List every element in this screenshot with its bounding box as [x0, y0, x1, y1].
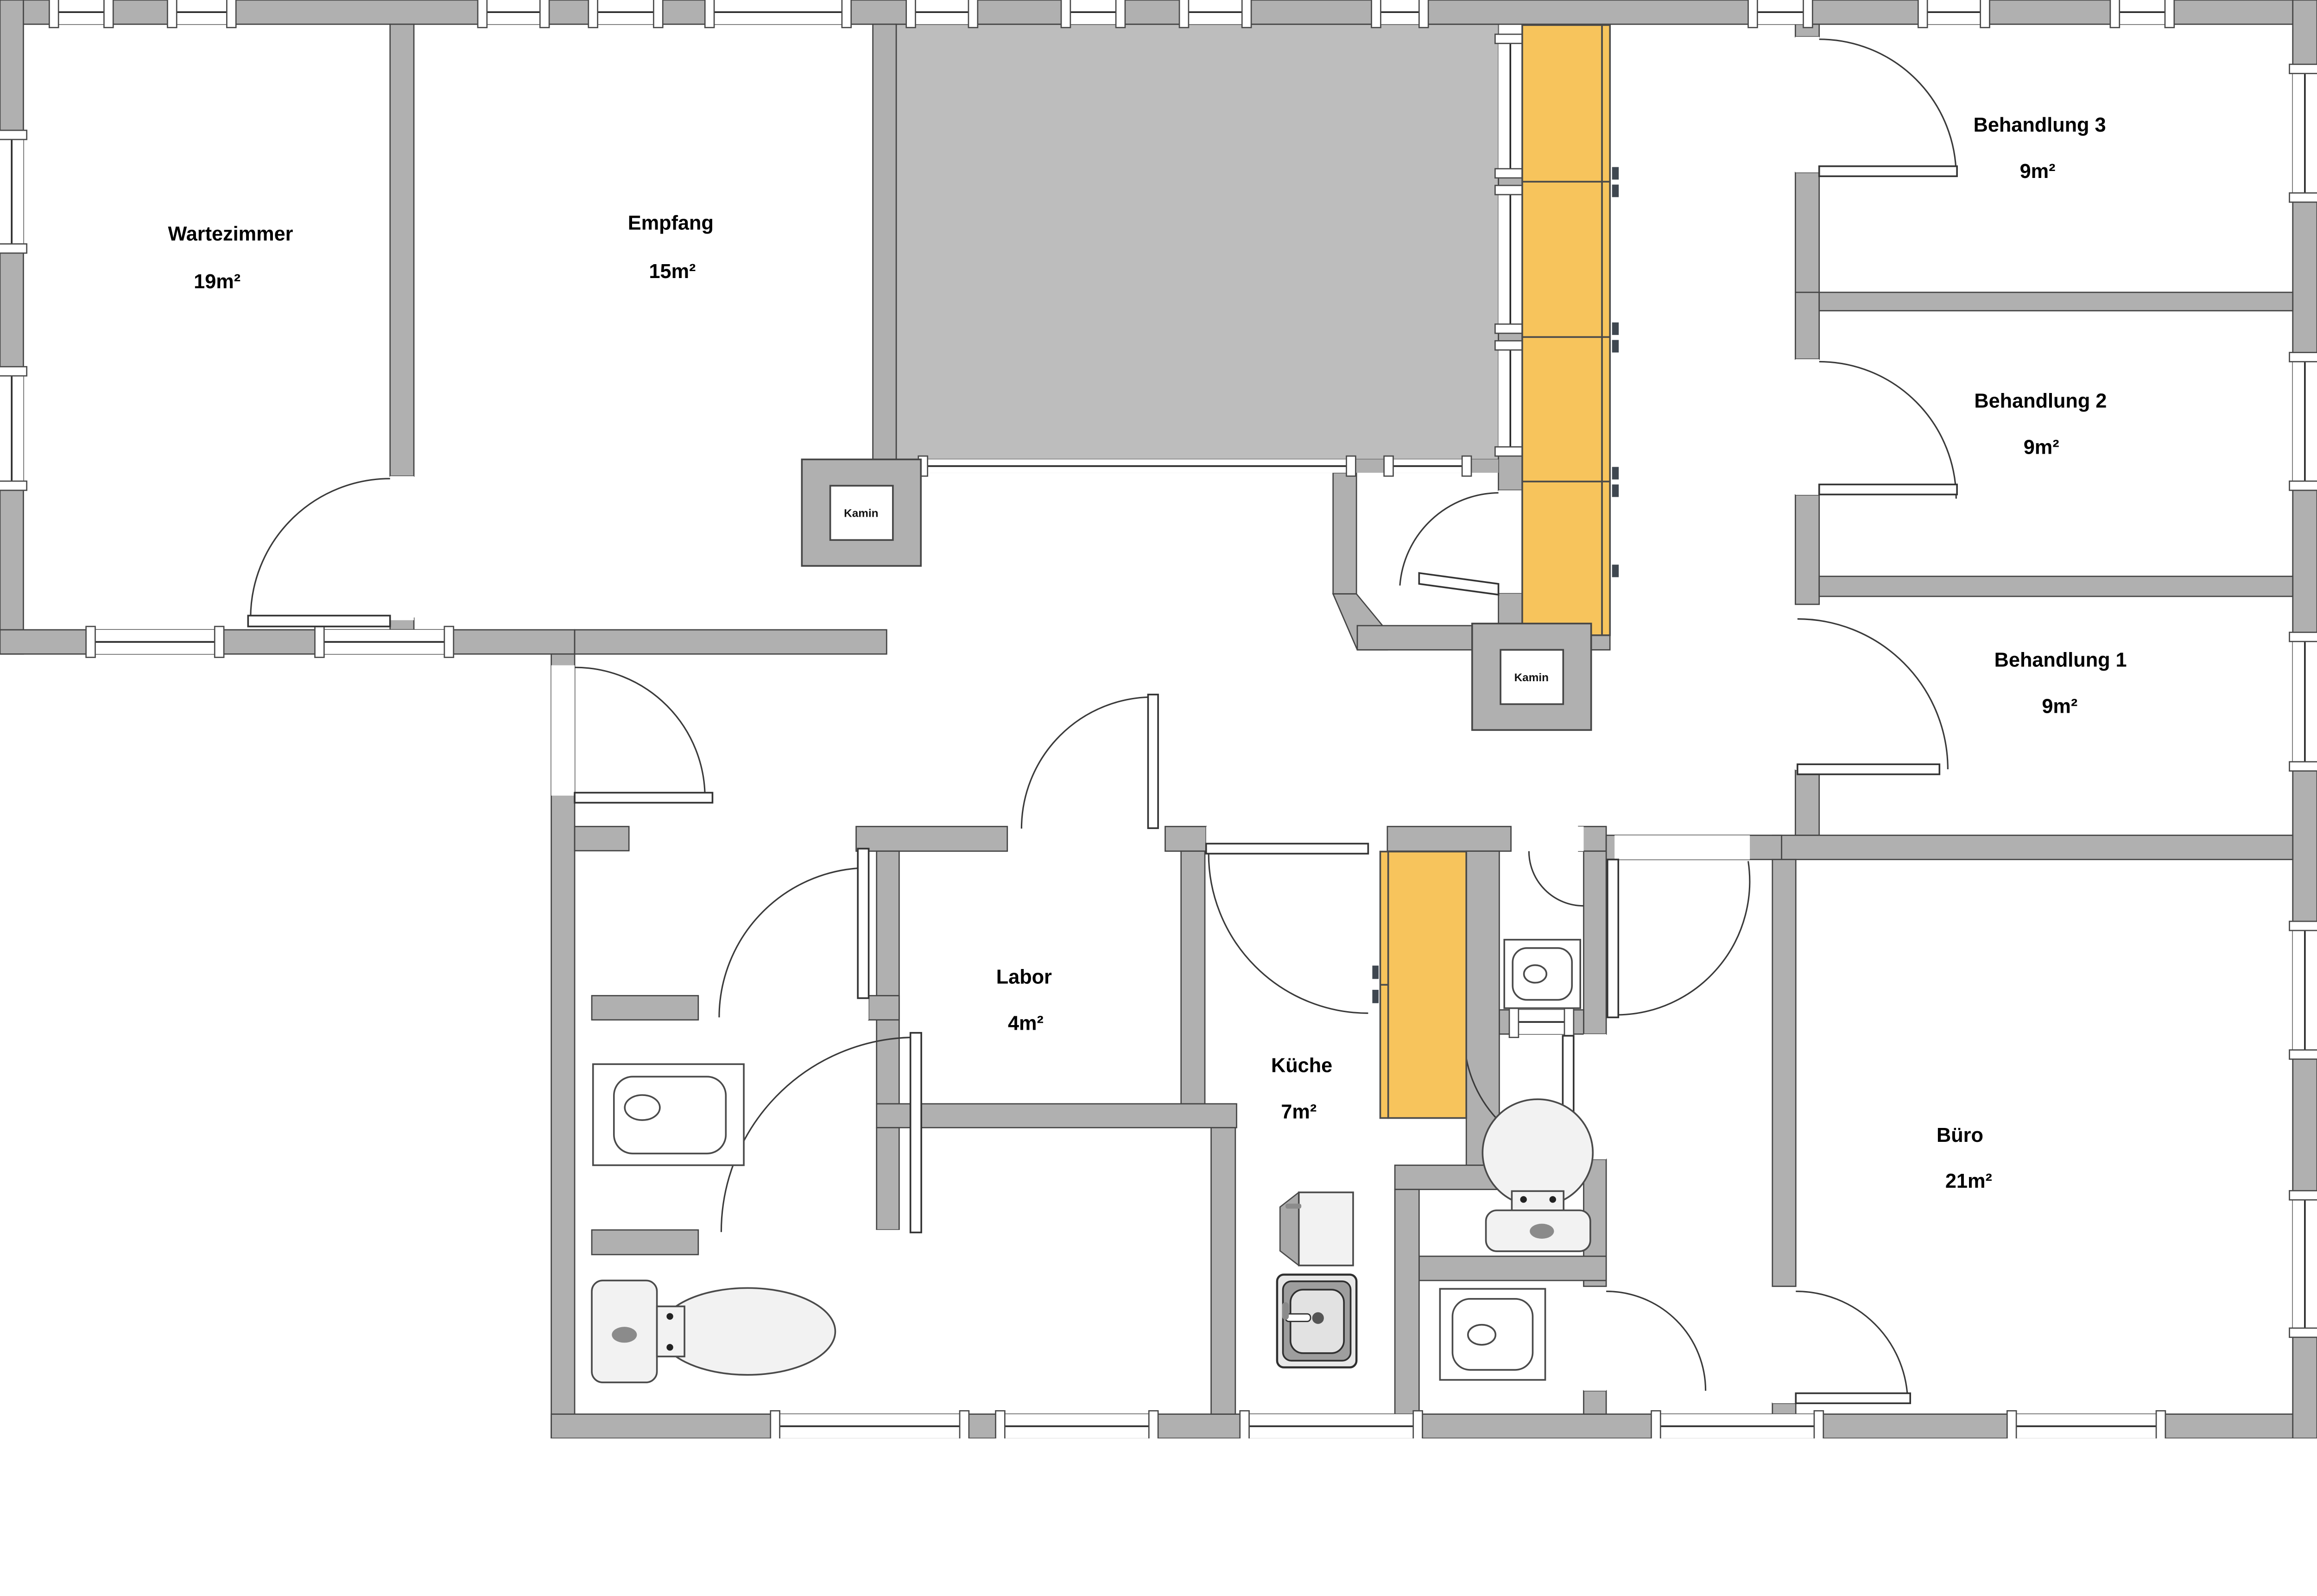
window	[1495, 34, 1526, 178]
window	[478, 0, 549, 27]
label-empfang: Empfang	[628, 212, 714, 234]
door-leaf	[911, 1033, 921, 1233]
window	[1748, 0, 1813, 27]
window	[0, 130, 27, 253]
window-jamb	[1981, 0, 1990, 27]
window	[315, 627, 454, 658]
floor-plan-svg: Wartezimmer 19m² Empfang 15m² Behandlung…	[0, 0, 2317, 1438]
window-jamb	[540, 0, 549, 27]
door-swing-arc	[1209, 854, 1368, 1013]
window	[705, 0, 851, 27]
window-jamb	[2156, 1411, 2165, 1438]
window-jamb	[589, 0, 598, 27]
window-jamb	[2290, 1191, 2317, 1200]
window-jamb	[0, 367, 27, 376]
window-jamb	[842, 0, 851, 27]
window-jamb	[0, 481, 27, 490]
window-jamb	[1495, 185, 1526, 195]
window	[2110, 0, 2174, 27]
area-kueche: 7m²	[1281, 1101, 1317, 1123]
window-jamb	[960, 1411, 969, 1438]
window-jamb	[2290, 353, 2317, 362]
kitchen-cabinet	[1372, 852, 1466, 1118]
door-opening	[1795, 359, 1819, 495]
window	[86, 627, 224, 658]
window	[49, 0, 113, 27]
door	[717, 849, 869, 1020]
window-jamb	[2290, 481, 2317, 490]
window	[2290, 64, 2317, 202]
window-jamb	[1179, 0, 1189, 27]
window-jamb	[2290, 1050, 2317, 1059]
door-opening	[1583, 1289, 1606, 1391]
window	[1509, 1007, 1574, 1038]
door-swing-arc	[1529, 851, 1583, 906]
door-opening	[717, 1230, 917, 1254]
window-jamb	[1651, 1411, 1660, 1438]
door	[1795, 359, 1957, 499]
door-opening	[1526, 827, 1583, 851]
window-jamb	[86, 627, 95, 658]
window-jamb	[1814, 1411, 1823, 1438]
window	[2290, 353, 2317, 490]
door-swing-arc	[1618, 861, 1750, 1015]
cabinet-door-strip	[1602, 25, 1610, 635]
door	[551, 665, 713, 803]
window	[2290, 921, 2317, 1059]
window	[1372, 0, 1429, 27]
window-jamb	[653, 0, 663, 27]
window	[589, 0, 663, 27]
window-jamb	[478, 0, 487, 27]
door-leaf	[1608, 860, 1618, 1018]
window-jamb	[227, 0, 236, 27]
door	[1795, 616, 1948, 774]
door-leaf	[858, 849, 868, 998]
area-labor: 4m²	[1008, 1012, 1044, 1034]
window	[167, 0, 236, 27]
window-jamb	[906, 0, 916, 27]
window-jamb	[1061, 0, 1070, 27]
terrace-area	[896, 24, 1499, 459]
window-jamb	[1372, 0, 1381, 27]
floor-plan: Wartezimmer 19m² Empfang 15m² Behandlung…	[0, 0, 2317, 1438]
door	[1795, 37, 1957, 176]
window	[771, 1411, 969, 1438]
window-jamb	[705, 0, 714, 27]
window	[1651, 1411, 1823, 1438]
toilet-wc	[1482, 1099, 1593, 1251]
area-buero: 21m²	[1945, 1170, 1992, 1192]
door-swing-arc	[1021, 697, 1153, 829]
window-jamb	[1384, 456, 1393, 476]
washbasin-left	[593, 1064, 744, 1165]
window-jamb	[969, 0, 978, 27]
window-jamb	[1509, 1007, 1519, 1038]
door-leaf	[248, 615, 390, 626]
window-jamb	[2290, 1328, 2317, 1337]
window-jamb	[49, 0, 58, 27]
window	[1918, 0, 1989, 27]
door-opening	[1499, 490, 1522, 593]
door-leaf	[1206, 843, 1368, 854]
door	[1206, 827, 1371, 1013]
door-opening	[1773, 1289, 1796, 1403]
door-leaf	[1798, 764, 1939, 774]
door	[1583, 1289, 1705, 1391]
window	[2290, 632, 2317, 771]
label-behandlung3: Behandlung 3	[1974, 114, 2106, 136]
area-empfang: 15m²	[649, 260, 696, 283]
window-jamb	[2290, 64, 2317, 74]
window-jamb	[444, 627, 454, 658]
window-jamb	[1748, 0, 1758, 27]
window-jamb	[1419, 0, 1428, 27]
window-jamb	[2007, 1411, 2016, 1438]
window-jamb	[1564, 1007, 1574, 1038]
area-wartezimmer: 19m²	[194, 271, 241, 293]
label-behandlung2: Behandlung 2	[1974, 390, 2107, 412]
door-leaf	[1796, 1393, 1910, 1403]
window-jamb	[1495, 341, 1526, 350]
toilet-left	[592, 1280, 835, 1382]
washbasin-wc-top	[1504, 940, 1580, 1008]
window	[1495, 185, 1526, 333]
window-jamb	[1495, 324, 1526, 333]
cabinet-handles	[1612, 167, 1619, 577]
window-jamb	[2290, 921, 2317, 931]
door-swing-arc	[251, 479, 390, 618]
kitchen-cabinet-body	[1388, 852, 1467, 1118]
window	[2007, 1411, 2165, 1438]
door-opening	[1795, 37, 1819, 172]
window	[2290, 1191, 2317, 1337]
window-jamb	[996, 1411, 1005, 1438]
door-swing-arc	[1798, 619, 1948, 769]
window-jamb	[1347, 456, 1356, 476]
door	[1773, 1289, 1910, 1403]
window-jamb	[1413, 1411, 1423, 1438]
door-opening	[551, 665, 575, 796]
window	[1061, 0, 1125, 27]
window-jamb	[1495, 169, 1526, 178]
window-jamb	[0, 244, 27, 253]
kitchen-sink	[1277, 1275, 1356, 1368]
window-jamb	[167, 0, 177, 27]
window-jamb	[104, 0, 113, 27]
washbasin-wc-bottom	[1440, 1289, 1545, 1380]
door-swing-arc	[719, 868, 869, 1018]
door-swing-arc	[1819, 361, 1956, 499]
window-jamb	[1803, 0, 1812, 27]
label-behandlung1: Behandlung 1	[1994, 649, 2127, 671]
door-opening	[717, 998, 869, 1020]
label-kueche: Küche	[1271, 1054, 1332, 1077]
door-leaf	[1819, 484, 1957, 494]
window	[1495, 341, 1526, 456]
window-jamb	[2290, 193, 2317, 202]
window-jamb	[1495, 34, 1526, 44]
door	[1019, 695, 1158, 851]
window-jamb	[1240, 1411, 1249, 1438]
window-jamb	[1149, 1411, 1158, 1438]
kitchen-appliance	[1280, 1192, 1353, 1266]
door-opening	[1019, 827, 1153, 851]
door	[1526, 827, 1583, 906]
window-jamb	[1495, 447, 1526, 456]
window	[906, 0, 978, 27]
door	[1400, 490, 1522, 595]
door-swing-arc	[1796, 1292, 1908, 1404]
window-jamb	[215, 627, 224, 658]
door-swing-arc	[575, 667, 705, 798]
door-leaf	[1148, 695, 1158, 828]
door-leaf	[575, 793, 712, 803]
window-jamb	[315, 627, 324, 658]
window	[1240, 1411, 1423, 1438]
door	[1608, 835, 1750, 1017]
window	[0, 367, 27, 490]
window-jamb	[2290, 632, 2317, 641]
window-jamb	[1918, 0, 1927, 27]
door-opening	[390, 476, 414, 620]
area-behandlung3: 9m²	[2020, 160, 2056, 183]
door-leaf	[1419, 573, 1498, 595]
window-jamb	[771, 1411, 780, 1438]
window-jamb	[0, 130, 27, 139]
door-opening	[1614, 835, 1750, 859]
door-swing-arc	[1819, 39, 1956, 177]
window-jamb	[1116, 0, 1125, 27]
window	[996, 1411, 1158, 1438]
window-jamb	[2110, 0, 2120, 27]
door	[248, 476, 414, 626]
door-opening	[1795, 616, 1819, 770]
area-behandlung2: 9m²	[2024, 437, 2059, 459]
label-kamin-1: Kamin	[844, 507, 878, 520]
door-leaf	[1819, 166, 1957, 177]
window-jamb	[2290, 762, 2317, 771]
door-swing-arc	[1606, 1292, 1705, 1391]
window-jamb	[1242, 0, 1251, 27]
label-labor: Labor	[996, 966, 1052, 988]
label-buero: Büro	[1937, 1124, 1983, 1146]
label-wartezimmer: Wartezimmer	[168, 223, 293, 245]
door-swing-arc	[1400, 493, 1499, 585]
label-kamin-2: Kamin	[1514, 671, 1549, 684]
area-behandlung1: 9m²	[2042, 695, 2077, 717]
window-jamb	[2165, 0, 2174, 27]
cabinet-column	[1522, 25, 1619, 635]
window	[1179, 0, 1251, 27]
window-jamb	[1462, 456, 1471, 476]
cabinet-body	[1522, 25, 1602, 635]
